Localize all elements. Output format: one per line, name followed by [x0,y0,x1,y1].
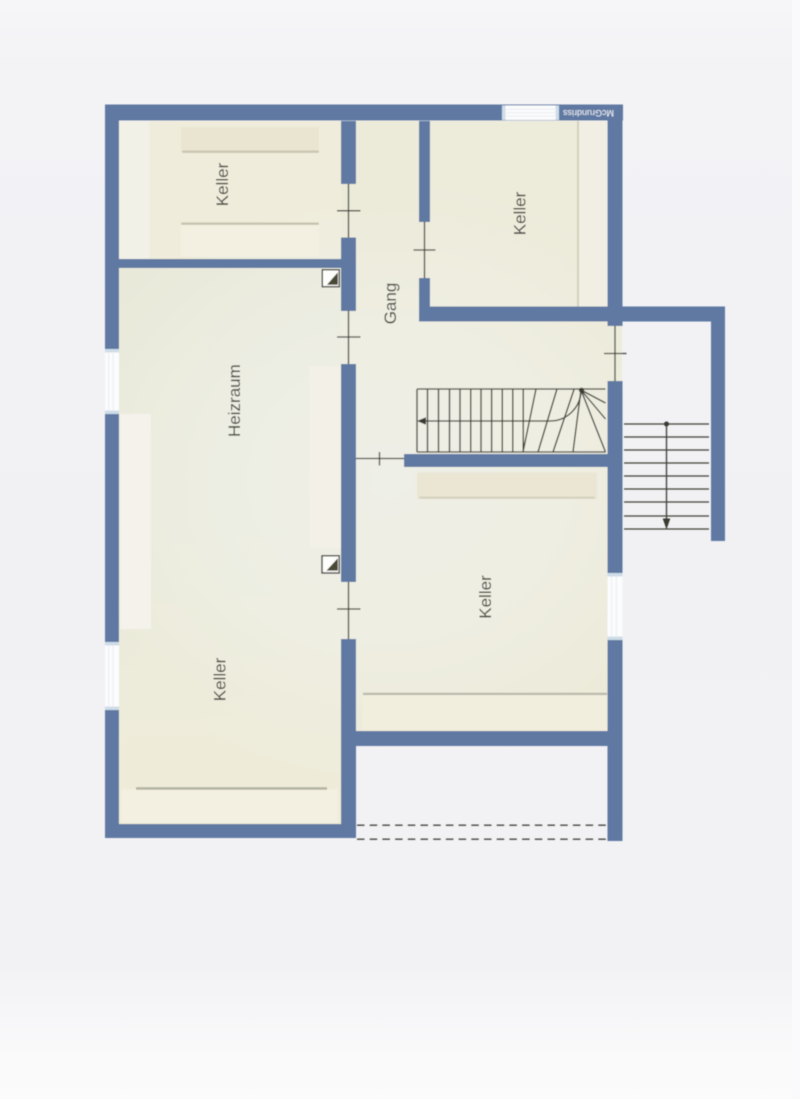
svg-text:Gang: Gang [381,283,400,325]
svg-text:Keller: Keller [213,162,232,206]
svg-text:Keller: Keller [511,191,530,235]
svg-text:Keller: Keller [476,575,495,619]
svg-text:Heizraum: Heizraum [225,364,244,437]
svg-text:McGrundriss: McGrundriss [563,108,615,118]
svg-text:Keller: Keller [211,657,230,701]
